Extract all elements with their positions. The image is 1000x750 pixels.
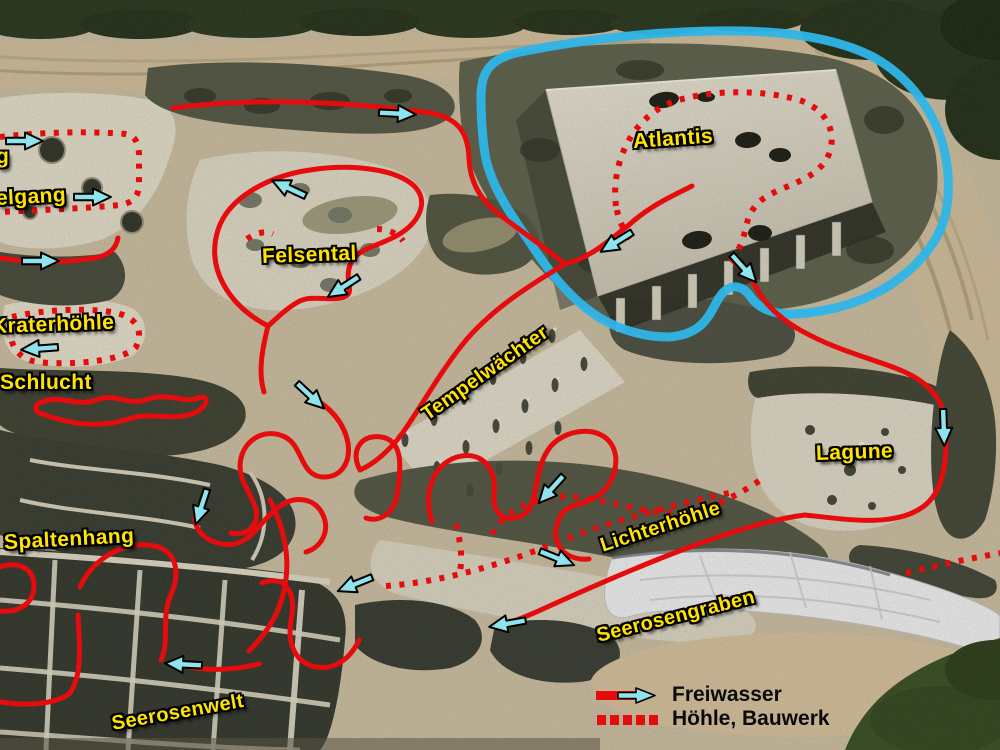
region-label-cut-2: elgang (0, 184, 67, 209)
solid-route-symbol (596, 686, 658, 705)
region-label-kraterhoehle: Kraterhöhle (0, 312, 115, 337)
region-label-atlantis: Atlantis (632, 125, 713, 152)
region-label-felsental: Felsental (262, 243, 357, 267)
cyan-arrow-icon (618, 688, 655, 703)
aerial-map: g elgang Felsental Kraterhöhle Schlucht … (0, 0, 1000, 750)
region-label-cut-1: g (0, 146, 9, 167)
region-label-schlucht: Schlucht (0, 372, 92, 393)
legend-label-hoehle-bauwerk: Höhle, Bauwerk (672, 708, 830, 730)
legend-label-freiwasser: Freiwasser (672, 684, 782, 706)
map-legend: Freiwasser Höhle, Bauwerk (596, 684, 830, 731)
legend-item-freiwasser: Freiwasser (596, 684, 830, 707)
dotted-route-symbol (596, 710, 658, 729)
legend-item-hoehle-bauwerk: Höhle, Bauwerk (596, 708, 830, 731)
region-label-lagune: Lagune (816, 440, 894, 464)
